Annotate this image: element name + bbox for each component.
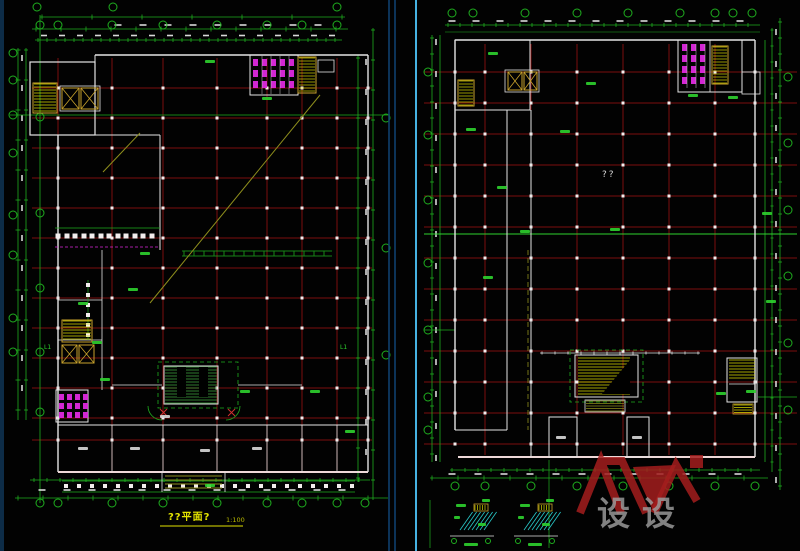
column-markers — [668, 226, 671, 229]
grid-bubble — [624, 9, 632, 17]
grid-bubble — [486, 539, 491, 544]
column-markers — [301, 297, 304, 300]
column-markers — [129, 484, 133, 488]
column-markers — [301, 177, 304, 180]
dim-text-smudge — [775, 189, 777, 195]
grid-bubble — [711, 9, 719, 17]
toilet-fixtures — [59, 394, 64, 400]
grid-bubble — [108, 499, 116, 507]
grid-bubble — [784, 339, 792, 347]
dim-text-smudge — [221, 35, 227, 37]
column-markers — [668, 412, 671, 415]
dim-text-smudge — [95, 35, 101, 37]
dim-text-smudge — [240, 24, 247, 26]
column-markers — [668, 288, 671, 291]
toilet-fixtures — [262, 81, 267, 88]
column-markers — [576, 412, 579, 415]
dim-text-smudge — [164, 489, 171, 491]
grid-bubble — [452, 539, 457, 544]
label-smudge — [518, 516, 524, 519]
label-smudge — [542, 523, 550, 526]
dim-text-smudge — [39, 489, 46, 491]
label-smudge — [205, 484, 215, 487]
dim-text-smudge — [435, 423, 437, 429]
rect-outline — [455, 40, 530, 110]
column-markers — [162, 117, 165, 120]
column-markers — [216, 327, 219, 330]
toilet-fixtures — [700, 66, 705, 73]
column-markers — [668, 133, 671, 136]
line — [150, 95, 320, 303]
toilet-fixtures — [280, 81, 285, 88]
toilet-fixtures — [280, 70, 285, 77]
column-markers — [90, 484, 94, 488]
toilet-fixtures — [682, 66, 687, 73]
label-smudge — [345, 430, 355, 433]
grid-bubble — [9, 314, 17, 322]
dim-text-smudge — [113, 35, 119, 37]
column-markers — [57, 117, 60, 120]
toilet-fixtures — [75, 394, 80, 400]
column-markers — [111, 387, 114, 390]
dim-text-smudge — [21, 295, 23, 301]
column-markers — [484, 226, 487, 229]
grid-bubble — [333, 3, 341, 11]
dim-text-smudge — [139, 489, 146, 491]
grid-bubble — [516, 539, 521, 544]
toilet-fixtures — [700, 55, 705, 62]
dim-text-smudge — [190, 24, 197, 26]
column-markers — [124, 234, 129, 239]
column-markers — [162, 237, 165, 240]
label-smudge — [466, 128, 476, 131]
column-markers — [714, 412, 717, 415]
dim-text-smudge — [365, 239, 367, 245]
dim-text-smudge — [59, 35, 65, 37]
grid-bubble — [424, 196, 432, 204]
label-smudge — [478, 523, 486, 526]
toilet-fixtures — [253, 70, 258, 77]
dim-text-smudge — [365, 329, 367, 335]
column-markers — [622, 288, 625, 291]
tiny-label: L1 — [340, 344, 347, 351]
column-markers — [668, 350, 671, 353]
toilet-fixtures — [271, 70, 276, 77]
label-smudge — [586, 82, 596, 85]
column-markers — [233, 484, 237, 488]
grid-bubble — [424, 393, 432, 401]
column-markers — [162, 177, 165, 180]
column-markers — [111, 177, 114, 180]
rect-outline — [318, 60, 334, 72]
label-smudge — [766, 300, 776, 303]
toilet-fixtures — [83, 394, 88, 400]
label-smudge — [746, 390, 756, 393]
grid-bubble — [751, 482, 759, 490]
toilet-fixtures — [280, 59, 285, 66]
dim-text-smudge — [435, 263, 437, 269]
dim-text-smudge — [435, 359, 437, 365]
rect-outline — [60, 86, 100, 111]
dim-text-smudge — [149, 35, 155, 37]
column-markers — [266, 117, 269, 120]
dim-text-smudge — [473, 20, 480, 22]
column-markers — [266, 357, 269, 360]
dim-text-smudge — [21, 55, 23, 61]
column-markers — [99, 234, 104, 239]
column-markers — [622, 133, 625, 136]
grid-bubble — [333, 499, 341, 507]
dim-text-smudge — [617, 20, 624, 22]
column-markers — [622, 226, 625, 229]
right-plan — [424, 9, 797, 548]
dim-text-smudge — [689, 20, 696, 22]
column-markers — [266, 267, 269, 270]
dim-text-smudge — [214, 489, 221, 491]
column-markers — [86, 333, 90, 337]
column-markers — [266, 417, 269, 420]
dim-text-smudge — [365, 209, 367, 215]
grid-bubble — [527, 482, 535, 490]
dim-text-smudge — [365, 89, 367, 95]
grid-bubble — [298, 21, 306, 29]
column-markers — [622, 319, 625, 322]
dim-text-smudge — [203, 35, 209, 37]
column-markers — [484, 350, 487, 353]
dim-text-smudge — [521, 20, 528, 22]
label-smudge — [130, 447, 140, 450]
column-markers — [285, 484, 289, 488]
dim-text-smudge — [239, 489, 246, 491]
column-markers — [82, 234, 87, 239]
dim-text-smudge — [21, 325, 23, 331]
grid-bubble — [448, 9, 456, 17]
dim-text-smudge — [579, 473, 586, 475]
column-markers — [116, 234, 121, 239]
dim-text-smudge — [339, 489, 346, 491]
label-smudge — [78, 302, 88, 305]
column-markers — [336, 177, 339, 180]
tiny-label: L1 — [44, 344, 51, 351]
cad-drawing: L1L1 — [0, 0, 800, 551]
label-smudge — [528, 543, 542, 546]
column-markers — [714, 443, 717, 446]
dim-text-smudge — [735, 473, 742, 475]
column-markers — [484, 319, 487, 322]
column-markers — [622, 71, 625, 74]
label-smudge — [262, 97, 272, 100]
column-markers — [336, 207, 339, 210]
dim-text-smudge — [475, 473, 482, 475]
column-markers — [622, 102, 625, 105]
column-markers — [111, 297, 114, 300]
dim-text-smudge — [265, 24, 272, 26]
column-markers — [266, 327, 269, 330]
column-markers — [246, 484, 250, 488]
dim-text-smudge — [131, 35, 137, 37]
column-markers — [336, 87, 339, 90]
dim-text-smudge — [775, 413, 777, 419]
dim-text-smudge — [593, 20, 600, 22]
path — [228, 409, 235, 416]
column-markers — [216, 207, 219, 210]
column-markers — [162, 327, 165, 330]
column-markers — [622, 195, 625, 198]
column-markers — [56, 234, 61, 239]
dim-text-smudge — [775, 221, 777, 227]
dim-text-smudge — [435, 167, 437, 173]
column-markers — [576, 195, 579, 198]
grid-bubble — [33, 3, 41, 11]
column-markers — [77, 484, 81, 488]
toilet-fixtures — [67, 403, 72, 409]
toilet-fixtures — [691, 44, 696, 51]
dim-text-smudge — [41, 35, 47, 37]
label-smudge — [488, 52, 498, 55]
label-smudge — [78, 447, 88, 450]
column-markers — [266, 207, 269, 210]
grid-bubble — [424, 426, 432, 434]
grid-bubble — [729, 9, 737, 17]
toilet-fixtures — [59, 412, 64, 418]
column-markers — [576, 319, 579, 322]
dim-text-smudge — [21, 175, 23, 181]
left-dimensions — [9, 3, 390, 507]
column-markers — [484, 71, 487, 74]
dim-text-smudge — [329, 35, 335, 37]
column-markers — [336, 117, 339, 120]
left-plan-title: ??平面? — [168, 513, 210, 523]
column-markers — [668, 102, 671, 105]
label-smudge — [520, 230, 530, 233]
dim-text-smudge — [140, 24, 147, 26]
column-markers — [266, 237, 269, 240]
toilet-fixtures — [289, 59, 294, 66]
column-markers — [336, 327, 339, 330]
grid-bubble — [619, 482, 627, 490]
column-markers — [150, 234, 155, 239]
column-markers — [484, 412, 487, 415]
column-markers — [714, 381, 717, 384]
toilet-fixtures — [262, 59, 267, 66]
toilet-fixtures — [75, 403, 80, 409]
dim-text-smudge — [289, 489, 296, 491]
toilet-fixtures — [83, 412, 88, 418]
column-markers — [622, 257, 625, 260]
column-markers — [111, 207, 114, 210]
dim-text-smudge — [553, 473, 560, 475]
column-markers — [162, 297, 165, 300]
grid-bubble — [521, 9, 529, 17]
column-markers — [141, 234, 146, 239]
column-markers — [86, 283, 90, 287]
grid-bubble — [424, 131, 432, 139]
dim-text-smudge — [775, 349, 777, 355]
toilet-fixtures — [83, 403, 88, 409]
dim-text-smudge — [77, 35, 83, 37]
grid-bubble — [333, 21, 341, 29]
column-markers — [111, 417, 114, 420]
column-markers — [266, 147, 269, 150]
column-markers — [116, 484, 120, 488]
dim-text-smudge — [290, 24, 297, 26]
dim-text-smudge — [365, 179, 367, 185]
column-markers — [484, 443, 487, 446]
column-markers — [64, 484, 68, 488]
right-plan-center-label: ?? — [602, 171, 616, 180]
grid-bubble — [213, 499, 221, 507]
grid-bubble — [550, 539, 555, 544]
column-markers — [301, 327, 304, 330]
column-markers — [714, 133, 717, 136]
grid-bubble — [54, 21, 62, 29]
column-markers — [220, 484, 224, 488]
cad-viewport: L1L1 ??平面? 1:100 ?? 设设 — [0, 0, 800, 551]
column-markers — [107, 234, 112, 239]
column-markers — [454, 443, 457, 446]
grid-bubble — [424, 259, 432, 267]
column-markers — [111, 147, 114, 150]
column-markers — [714, 164, 717, 167]
toilet-fixtures — [691, 66, 696, 73]
dim-text-smudge — [775, 157, 777, 163]
grid-bubble — [298, 499, 306, 507]
column-markers — [111, 87, 114, 90]
label-smudge — [92, 341, 102, 344]
dim-text-smudge — [365, 299, 367, 305]
dim-text-smudge — [365, 269, 367, 275]
column-markers — [668, 71, 671, 74]
label-smudge — [100, 378, 110, 381]
watermark-text: 设设 — [597, 497, 687, 530]
dim-text-smudge — [435, 103, 437, 109]
column-markers — [714, 195, 717, 198]
column-markers — [668, 381, 671, 384]
dim-text-smudge — [239, 35, 245, 37]
dim-text-smudge — [311, 35, 317, 37]
toilet-fixtures — [67, 394, 72, 400]
column-markers — [668, 443, 671, 446]
column-markers — [216, 117, 219, 120]
grid-bubble — [9, 251, 17, 259]
column-markers — [266, 177, 269, 180]
column-markers — [216, 267, 219, 270]
label-smudge — [140, 252, 150, 255]
dim-text-smudge — [435, 199, 437, 205]
column-markers — [714, 257, 717, 260]
column-markers — [336, 387, 339, 390]
column-markers — [576, 102, 579, 105]
toilet-fixtures — [271, 81, 276, 88]
toilet-fixtures — [253, 81, 258, 88]
column-markers — [350, 484, 354, 488]
dim-text-smudge — [257, 35, 263, 37]
column-markers — [86, 313, 90, 317]
toilet-fixtures — [289, 70, 294, 77]
label-smudge — [728, 96, 738, 99]
label-smudge — [456, 504, 466, 507]
column-markers — [324, 484, 328, 488]
dim-text-smudge — [365, 359, 367, 365]
column-markers — [714, 102, 717, 105]
label-smudge — [610, 228, 620, 231]
column-markers — [484, 257, 487, 260]
toilet-fixtures — [682, 77, 687, 84]
column-markers — [90, 234, 95, 239]
rect-outline — [690, 455, 703, 468]
column-markers — [103, 484, 107, 488]
dim-text-smudge — [365, 449, 367, 455]
label-smudge — [520, 504, 530, 507]
dim-text-smudge — [775, 253, 777, 259]
column-markers — [162, 87, 165, 90]
toilet-fixtures — [271, 59, 276, 66]
dim-text-smudge — [775, 477, 777, 483]
dim-text-smudge — [189, 489, 196, 491]
column-markers — [714, 350, 717, 353]
dim-text-smudge — [545, 20, 552, 22]
column-markers — [484, 102, 487, 105]
column-markers — [336, 417, 339, 420]
grid-bubble — [469, 9, 477, 17]
column-markers — [576, 164, 579, 167]
label-smudge — [632, 436, 642, 439]
grid-bubble — [361, 499, 369, 507]
dim-text-smudge — [365, 149, 367, 155]
toilet-fixtures — [682, 44, 687, 51]
label-smudge — [716, 392, 726, 395]
right-stair-details — [450, 499, 561, 546]
grid-bubble — [9, 149, 17, 157]
dim-text-smudge — [365, 419, 367, 425]
toilet-fixtures — [289, 81, 294, 88]
label-smudge — [482, 499, 490, 502]
column-markers — [142, 484, 146, 488]
left-plan: L1L1 — [9, 3, 390, 507]
left-labels: L1L1 — [44, 60, 355, 487]
dim-text-smudge — [264, 489, 271, 491]
dim-text-smudge — [365, 119, 367, 125]
column-markers — [181, 484, 185, 488]
label-smudge — [483, 276, 493, 279]
dim-text-smudge — [315, 24, 322, 26]
dim-text-smudge — [775, 125, 777, 131]
label-smudge — [160, 415, 170, 418]
column-markers — [111, 117, 114, 120]
dim-text-smudge — [665, 20, 672, 22]
dim-text-smudge — [114, 489, 121, 491]
column-markers — [301, 147, 304, 150]
page — [0, 0, 703, 551]
grid-bubble — [711, 482, 719, 490]
dim-text-smudge — [365, 59, 367, 65]
dim-text-smudge — [435, 71, 437, 77]
column-markers — [111, 327, 114, 330]
right-dimensions — [424, 9, 797, 548]
grid-bubble — [676, 9, 684, 17]
dim-text-smudge — [435, 295, 437, 301]
label-smudge — [688, 94, 698, 97]
line — [103, 133, 140, 172]
column-markers — [86, 323, 90, 327]
dim-text-smudge — [449, 473, 456, 475]
rect-outline — [742, 72, 760, 94]
label-smudge — [762, 212, 772, 215]
column-markers — [301, 417, 304, 420]
dim-text-smudge — [435, 455, 437, 461]
dim-text-smudge — [21, 145, 23, 151]
grid-bubble — [784, 272, 792, 280]
